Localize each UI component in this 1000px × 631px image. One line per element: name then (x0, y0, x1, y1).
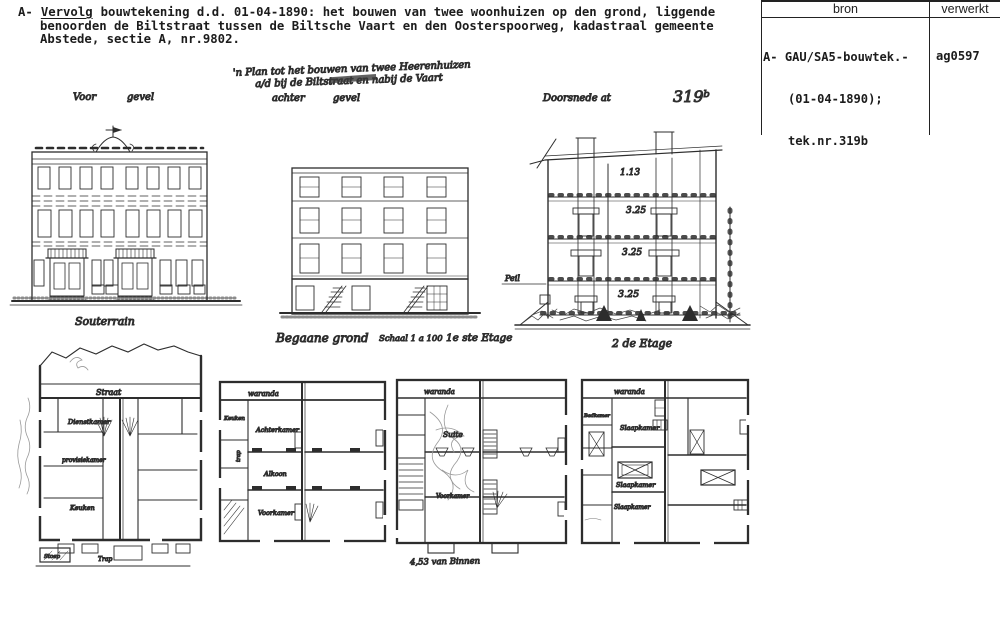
label-side-keuken: Keuken (223, 416, 245, 422)
entrance-porch (46, 249, 88, 300)
label-slaapkamer-1: Slaapkamer (620, 424, 660, 432)
label-suite: Suite (443, 430, 463, 439)
label-slaapkamer-2: Slaapkamer (616, 481, 656, 489)
label-tekening-nummer: 319ᵇ (673, 87, 710, 106)
floor-plan-eerste-etage: waranda (395, 380, 568, 568)
floor-plan-tweede-etage: waranda Badkamer Slaapkamer Slaapkamer S… (580, 380, 750, 545)
dim-second-floor: 3.25 (626, 206, 646, 216)
label-waranda-p4: waranda (614, 388, 645, 396)
label-room-keuken: Keuken (69, 504, 95, 512)
floor-plan-souterrain: Straat Dienstkamer provisiekamer Keuken (18, 344, 203, 566)
pencil-inscription: 'n Plan tot het bouwen van twee Heerenhu… (233, 60, 472, 91)
dim-first-floor: 3.25 (622, 248, 642, 258)
drawing-titles: Voor gevel achter gevel Doorsnede at 319… (73, 87, 710, 106)
label-voorkamer-p3: Voorkamer (436, 493, 470, 500)
label-achter: achter (272, 93, 306, 104)
label-waranda-p2: waranda (248, 390, 279, 398)
rear-stairs (322, 286, 428, 312)
caption-begane-grond: Begaane grond (275, 331, 369, 345)
label-straat: Straat (96, 388, 122, 397)
front-elevation: Souterrain (10, 126, 242, 328)
label-badkamer: Badkamer (583, 413, 611, 419)
label-doorsnede: Doorsnede at (542, 93, 612, 104)
label-room-provisiekamer: provisiekamer (62, 457, 107, 464)
floor-plan-begane-grond: waranda Keuken trap Achterkamer Alkoon V… (218, 382, 387, 543)
label-alkoon: Alkoon (263, 470, 287, 478)
caption-souterrain: Souterrain (75, 315, 135, 328)
cross-section: Peil 1.13 3.25 3.25 3.25 2 de Etage (502, 132, 750, 350)
label-trap: Trap (98, 556, 112, 563)
caption-eerste-etage: 1e ste Etage (446, 332, 512, 344)
label-room-dienstkamer: Dienstkamer (67, 418, 111, 426)
label-achterkamer: Achterkamer (255, 426, 300, 434)
label-achter-gevel: gevel (333, 93, 360, 104)
label-voorkamer-p2: Voorkamer (258, 509, 295, 517)
drawing-sheet: 'n Plan tot het bouwen van twee Heerenhu… (0, 0, 1000, 631)
dim-attic: 1.13 (620, 168, 640, 178)
rear-elevation: Begaane grond Schaal 1 a 100 1e ste Etag… (275, 168, 512, 345)
label-voor-gevel: gevel (127, 92, 154, 103)
archive-document-page: A-Vervolgbouwtekening d.d. 01-04-1890: h… (0, 0, 1000, 631)
dim-ground-floor: 3.25 (618, 289, 639, 300)
label-voor: Voor (73, 92, 97, 103)
label-stoep: Stoep (44, 554, 61, 560)
label-slaapkamer-3: Slaapkamer (614, 504, 651, 511)
label-waranda-p3: waranda (424, 388, 455, 396)
label-trap-p2: trap (236, 450, 242, 462)
label-peil: Peil (504, 274, 520, 283)
caption-maat: 4,53 van Binnen (409, 556, 480, 567)
caption-schaal: Schaal 1 a 100 (379, 334, 443, 344)
caption-tweede-etage: 2 de Etage (611, 337, 673, 350)
